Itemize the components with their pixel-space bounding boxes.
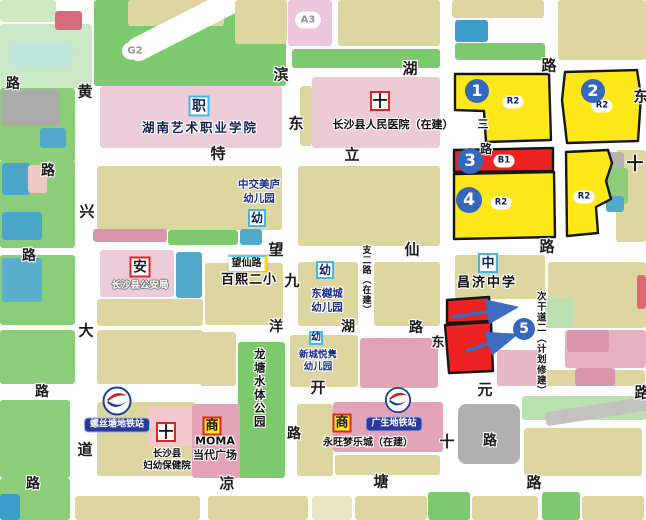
marker-number-4: 4 — [456, 187, 482, 213]
zone-tag: R2 — [503, 96, 524, 109]
marker-number-3: 3 — [457, 148, 483, 174]
area-code-oval: G2 — [122, 43, 148, 60]
overlays-layer: G2A3R2R2B1R2R212345螺丝塘地铁站广生地铁站望仙路 — [0, 0, 646, 520]
area-code-oval: A3 — [295, 12, 321, 29]
marker-number-5: 5 — [513, 318, 535, 340]
metro-station-logo — [102, 386, 132, 420]
metro-station-label: 螺丝塘地铁站 — [84, 418, 150, 433]
zone-tag: R2 — [491, 197, 512, 210]
marker-number-1: 1 — [465, 79, 489, 103]
metro-station-label: 广生地铁站 — [365, 417, 422, 432]
marker-number-2: 2 — [581, 79, 605, 103]
road-name-highlight: 望仙路 — [229, 255, 268, 271]
metro-station-logo — [385, 387, 412, 418]
zone-tag: R2 — [574, 191, 595, 204]
zone-tag: B1 — [494, 155, 515, 168]
planning-map: 路黄滨湖路东东特立三路十路兴望仙路路九大洋湖路东路开元路道路十路路凉塘路支二路（… — [0, 0, 646, 520]
